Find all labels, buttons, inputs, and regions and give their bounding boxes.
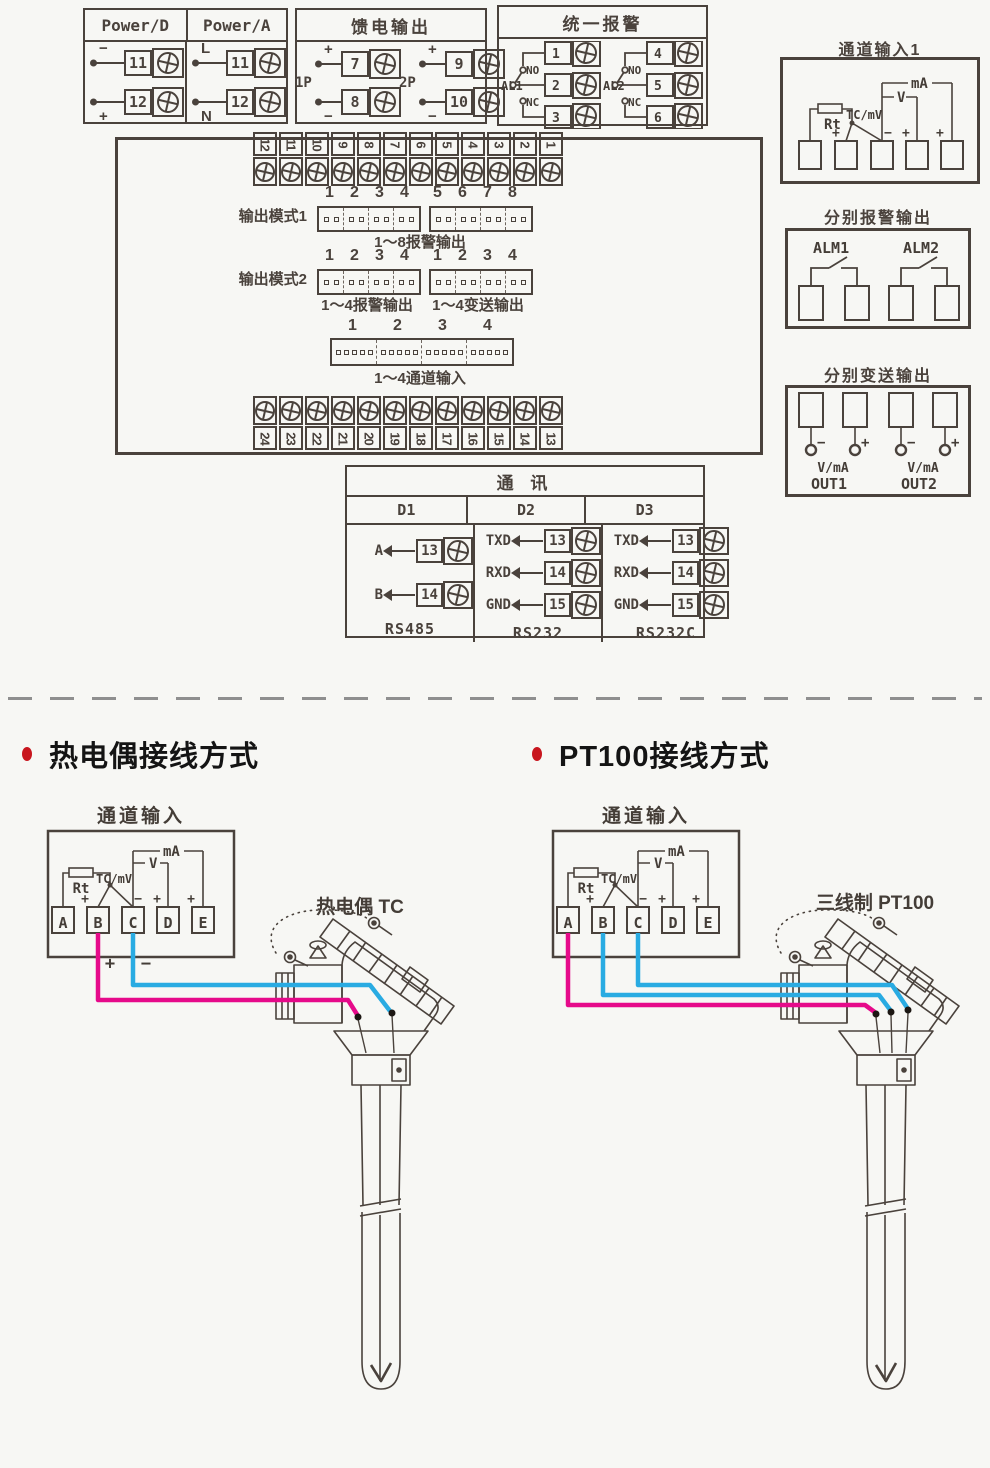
terminal-number: 15 — [492, 432, 507, 444]
comm-col-d2: D2 — [466, 497, 585, 523]
nc-label: NC — [628, 96, 641, 109]
terminal-number: 15 — [544, 593, 571, 617]
arrow-left-icon — [513, 572, 543, 574]
terminal-number: 17 — [440, 432, 455, 444]
ma-label: mA — [163, 844, 180, 860]
comm-col-d1: D1 — [347, 497, 466, 523]
screw-icon — [259, 52, 281, 74]
terminal-cell: 2 — [513, 132, 537, 186]
terminal-cell: 22 — [305, 396, 329, 450]
screw-icon — [489, 401, 509, 421]
screw-icon — [541, 401, 561, 421]
terminal-cell: 8 — [357, 132, 381, 186]
terminal-letter: B — [93, 914, 102, 932]
screw-icon — [333, 162, 353, 182]
polarity-sign: + — [99, 109, 108, 124]
arrow-left-icon — [641, 540, 671, 542]
comm-terminal-row: TXD 13 — [603, 527, 729, 555]
screw-icon — [385, 162, 405, 182]
comm-terminal-row: RXD 14 — [475, 559, 601, 587]
terminal-number: 3 — [552, 111, 560, 126]
v-label: V — [654, 856, 663, 872]
screw-icon — [411, 162, 431, 182]
terminal-number: 7 — [341, 51, 369, 77]
terminal-cell: 16 — [461, 396, 485, 450]
pin-number: 2 — [342, 184, 367, 202]
terminal-number: 14 — [518, 432, 533, 444]
pin-number: 8 — [500, 184, 525, 202]
terminal-dot — [873, 1011, 880, 1018]
v-label: V — [149, 856, 158, 872]
mode1-pin-numbers: 1234 5678 — [317, 184, 525, 202]
mode2-connectors — [317, 269, 533, 295]
terminal-row: + 12 — [90, 85, 185, 119]
channel-pin-numbers: 1234 — [330, 317, 510, 335]
terminal-dot — [888, 1009, 895, 1016]
separate-alarm-title: 分别报警输出 — [785, 204, 971, 228]
feed-output-box: 馈电输出 1P + 7 − 8 2P + 9 — [295, 8, 487, 124]
ma-label: mA — [668, 844, 685, 860]
screw-icon — [411, 401, 431, 421]
terminal-letter: A — [563, 914, 572, 932]
terminal-number: 10 — [310, 138, 325, 150]
connector-block — [317, 269, 421, 295]
v-label: V — [897, 90, 906, 106]
pin-number: 3 — [475, 247, 500, 265]
red-bullet-icon — [532, 747, 542, 761]
out2-label: OUT2 — [901, 475, 937, 493]
comm-col-d3: D3 — [584, 497, 703, 523]
screw-icon — [259, 91, 281, 113]
polarity-sign: − — [134, 892, 142, 907]
polarity-sign: + — [153, 892, 161, 907]
polarity-sign: − — [324, 109, 333, 124]
terminal-cell: 23 — [279, 396, 303, 450]
comm-terminal-row: B 14 — [347, 581, 473, 609]
terminal-cell: 18 — [409, 396, 433, 450]
pin-number: 4 — [500, 247, 525, 265]
terminal-cell: 17 — [435, 396, 459, 450]
polarity-sign: + — [658, 892, 666, 907]
terminal-cell: 13 — [539, 396, 563, 450]
terminal-cell: 15 — [487, 396, 511, 450]
screw-icon — [463, 401, 483, 421]
polarity-sign: + — [428, 42, 437, 57]
pin-number: 5 — [425, 184, 450, 202]
unified-alarm-title: 统一报警 — [499, 7, 706, 39]
channel-connector — [330, 338, 514, 366]
terminal-letter: A — [58, 914, 67, 932]
screw-icon — [489, 162, 509, 182]
terminal-number: 8 — [361, 141, 376, 147]
terminal-dot — [355, 1014, 362, 1021]
input-terminals — [799, 141, 963, 169]
terminal-dot — [389, 1010, 396, 1017]
terminal-letter: D — [668, 914, 677, 932]
screw-icon — [359, 162, 379, 182]
screw-icon — [157, 91, 179, 113]
screw-icon — [307, 401, 327, 421]
pin-number: 7 — [475, 184, 500, 202]
separate-alarm-box: ALM1 ALM2 — [785, 228, 971, 329]
screw-icon — [437, 401, 457, 421]
separate-transmit-title: 分别变送输出 — [785, 362, 971, 386]
screw-icon — [359, 401, 379, 421]
alm2-label: ALM2 — [903, 239, 939, 257]
separate-transmit-box: − + − + V/mA V/mA OUT1 OUT2 — [785, 385, 971, 497]
screw-icon — [447, 540, 469, 562]
terminal-letter: E — [703, 914, 712, 932]
screw-icon — [463, 162, 483, 182]
dashed-divider — [8, 697, 982, 700]
unified-alarm-box: 统一报警 AL1 NO NC 1 2 — [497, 5, 708, 126]
channel-input1-box: Rt TC/mV V mA + − + + — [780, 57, 980, 184]
screw-icon — [515, 162, 535, 182]
terminal-cell: 20 — [357, 396, 381, 450]
pin-number: 4 — [392, 184, 417, 202]
polarity-sign: − — [428, 109, 437, 124]
terminal-number: 14 — [544, 561, 571, 585]
polarity-sign: + — [936, 126, 944, 141]
alm2-relay — [889, 257, 959, 320]
blue-wire — [638, 933, 908, 1009]
polarity-sign: − — [884, 126, 892, 141]
power-terminals-box: Power/D Power/A − 11 + 12 L 11 — [83, 8, 288, 124]
terminal-row: + 9 — [419, 47, 505, 81]
terminal-row: − 11 — [90, 46, 185, 80]
terminal-cell: 11 — [279, 132, 303, 186]
polarity-sign: + — [586, 892, 594, 907]
connector-block — [429, 206, 533, 232]
arrow-left-icon — [385, 594, 415, 596]
polarity-sign: − — [907, 435, 915, 451]
channel-input-title: 通道输入 — [602, 804, 690, 827]
terminal-number: 2 — [552, 79, 560, 94]
screw-icon — [374, 53, 396, 75]
alarm-relay-al1: AL1 NO NC 1 2 3 — [501, 41, 602, 129]
pin-number: 3 — [367, 247, 392, 265]
terminal-number: 14 — [672, 561, 699, 585]
pin-number: 4 — [465, 317, 510, 335]
mode2-caption-left: 1～4报警输出 — [321, 294, 413, 315]
port-type-label: RS232 — [513, 624, 563, 642]
terminal-letter: E — [198, 914, 207, 932]
wire-polarity: + — [105, 954, 115, 974]
comm-terminal-row: GND 15 — [603, 591, 729, 619]
signal-label: B — [347, 587, 383, 603]
group-label: 1P — [295, 75, 312, 91]
pin-number: 3 — [367, 184, 392, 202]
comm-title: 通 讯 — [347, 467, 703, 497]
thermowell-probe — [776, 910, 959, 1389]
terminal-number: 18 — [414, 432, 429, 444]
feed-group-2p: 2P + 9 − 10 — [401, 47, 505, 119]
pin-number: 1 — [317, 184, 342, 202]
pin-number: 1 — [317, 247, 342, 265]
terminal-number: 1 — [543, 141, 558, 147]
pt100-section-heading: PT100接线方式 — [532, 733, 769, 775]
terminal-cell: 19 — [383, 396, 407, 450]
terminal-number: 8 — [341, 89, 369, 115]
terminal-number: 13 — [672, 529, 699, 553]
mode2-pin-numbers: 1234 1234 — [317, 247, 525, 265]
arrow-left-icon — [513, 540, 543, 542]
terminal-cell: 9 — [331, 132, 355, 186]
polarity-sign: + — [902, 126, 910, 141]
polarity-sign: + — [951, 435, 959, 451]
screw-icon — [333, 401, 353, 421]
screw-icon — [515, 401, 535, 421]
nc-label: NC — [526, 96, 539, 109]
heading-text: PT100接线方式 — [559, 733, 769, 775]
ma-label: mA — [911, 76, 928, 92]
power-d-column: − 11 + 12 — [85, 42, 185, 123]
terminal-number: 4 — [654, 47, 662, 62]
terminal-letter: C — [633, 914, 642, 932]
terminal-cell: 4 — [461, 132, 485, 186]
terminal-number: 21 — [336, 432, 351, 444]
vma-label: V/mA — [817, 461, 848, 476]
relay-label: AL2 — [603, 79, 625, 93]
top-terminal-strip: 12 11 10 9 8 7 6 5 — [253, 132, 563, 186]
signal-label: A — [347, 543, 383, 559]
screw-icon — [575, 594, 597, 616]
terminal-number: 15 — [672, 593, 699, 617]
alm1-label: ALM1 — [813, 239, 849, 257]
terminal-number: 10 — [445, 89, 473, 115]
polarity-sign: + — [832, 126, 840, 141]
feed-group-1p: 1P + 7 − 8 — [297, 47, 401, 119]
feed-output-title: 馈电输出 — [297, 10, 485, 42]
screw-icon — [437, 162, 457, 182]
pin-number: 6 — [450, 184, 475, 202]
terminal-number: 6 — [654, 111, 662, 126]
polarity-sign: + — [187, 892, 195, 907]
alarm-relay-al2: AL2 NO NC 4 5 6 — [603, 41, 704, 129]
screw-icon — [281, 401, 301, 421]
channel-input-title: 通道输入 — [97, 804, 185, 827]
arrow-left-icon — [641, 572, 671, 574]
terminal-number: 3 — [491, 141, 506, 147]
pt100-wiring-drawing: 通道输入 A B C D E Rt TC/mV V mA + − — [535, 795, 990, 1455]
screw-icon — [575, 562, 597, 584]
screw-icon — [255, 401, 275, 421]
screw-icon — [703, 562, 725, 584]
mode1-connectors — [317, 206, 533, 232]
terminal-number: 14 — [416, 583, 443, 607]
screw-icon — [307, 162, 327, 182]
terminal-number: 19 — [388, 432, 403, 444]
terminal-number: 7 — [387, 141, 402, 147]
thermocouple-section-heading: 热电偶接线方式 — [22, 733, 259, 775]
polarity-sign: L — [201, 41, 210, 56]
screw-icon — [374, 91, 396, 113]
terminal-number: 5 — [439, 141, 454, 147]
thermocouple-wiring-drawing: 通道输入 A B C D E Rt TC/mV V mA + − — [30, 795, 485, 1455]
signal-label: RXD — [603, 565, 639, 581]
screw-icon — [447, 584, 469, 606]
signal-label: TXD — [603, 533, 639, 549]
polarity-sign: − — [817, 435, 825, 451]
no-label: NO — [628, 64, 642, 77]
comm-d2-column: TXD 13 RXD 14 GND 15 — [473, 525, 601, 642]
polarity-sign: + — [692, 892, 700, 907]
terminal-cell: 12 — [253, 132, 277, 186]
comm-terminal-row: GND 15 — [475, 591, 601, 619]
terminal-number: 11 — [124, 50, 152, 76]
terminal-number: 6 — [413, 141, 428, 147]
wire-polarity: − — [141, 954, 151, 974]
out2-terminals — [889, 393, 957, 455]
power-d-title: Power/D — [85, 10, 186, 42]
screw-icon — [575, 530, 597, 552]
terminal-cell: 7 — [383, 132, 407, 186]
no-label: NO — [526, 64, 540, 77]
screw-icon — [541, 162, 561, 182]
terminal-number: 20 — [362, 432, 377, 444]
arrow-left-icon — [641, 604, 671, 606]
polarity-sign: − — [99, 41, 108, 56]
terminal-cell: 21 — [331, 396, 355, 450]
connector-block — [317, 206, 421, 232]
sensor-label: 三线制 PT100 — [816, 891, 934, 914]
output-mode2-label: 输出模式2 — [195, 268, 307, 289]
terminal-number: 12 — [258, 138, 273, 150]
connector-block — [330, 338, 514, 366]
pin-number: 2 — [375, 317, 420, 335]
terminal-number: 12 — [124, 89, 152, 115]
signal-label: GND — [603, 597, 639, 613]
comm-terminal-row: TXD 13 — [475, 527, 601, 555]
screw-icon — [255, 162, 275, 182]
terminal-number: 1 — [552, 47, 560, 62]
terminal-number: 22 — [310, 432, 325, 444]
mode2-caption-right: 1～4变送输出 — [432, 294, 524, 315]
out1-terminals — [799, 393, 867, 455]
pin-number: 4 — [392, 247, 417, 265]
comm-d3-column: TXD 13 RXD 14 GND 15 — [601, 525, 729, 642]
terminal-number: 13 — [544, 529, 571, 553]
pin-number: 1 — [425, 247, 450, 265]
terminal-cell: 14 — [513, 396, 537, 450]
arrow-left-icon — [385, 550, 415, 552]
tc-mv-label: TC/mV — [601, 872, 637, 886]
power-a-title: Power/A — [186, 10, 287, 42]
terminal-number: 2 — [517, 141, 532, 147]
screw-icon — [281, 162, 301, 182]
terminal-number: 13 — [544, 432, 559, 444]
terminal-row: − 8 — [315, 85, 401, 119]
terminal-number: 4 — [465, 141, 480, 147]
terminal-letter: D — [163, 914, 172, 932]
thermowell-probe — [271, 910, 454, 1389]
terminal-number: 9 — [445, 51, 473, 77]
terminal-cell: 10 — [305, 132, 329, 186]
port-type-label: RS485 — [385, 620, 435, 638]
terminal-number: 11 — [284, 138, 299, 150]
connector-block — [429, 269, 533, 295]
pin-number: 1 — [330, 317, 375, 335]
tc-mv-label: TC/mV — [96, 872, 132, 886]
relay-label: AL1 — [501, 79, 523, 93]
communication-box: 通 讯 D1 D2 D3 A 13 B 14 — [345, 465, 705, 638]
output-mode1-label: 输出模式1 — [195, 205, 307, 226]
terminal-number: 11 — [226, 50, 254, 76]
terminal-cell: 1 — [539, 132, 563, 186]
vma-label: V/mA — [907, 461, 938, 476]
screw-icon — [703, 530, 725, 552]
terminal-letter: C — [128, 914, 137, 932]
port-type-label: RS232C — [636, 624, 696, 642]
polarity-sign: + — [861, 435, 869, 451]
terminal-cell: 5 — [435, 132, 459, 186]
pin-number: 2 — [342, 247, 367, 265]
red-bullet-icon — [22, 747, 32, 761]
terminal-cell: 6 — [409, 132, 433, 186]
power-a-column: L 11 N 12 — [185, 42, 286, 123]
signal-label: TXD — [475, 533, 511, 549]
pin-number: 2 — [450, 247, 475, 265]
out1-label: OUT1 — [811, 475, 847, 493]
terminal-cell: 3 — [487, 132, 511, 186]
screw-icon — [385, 401, 405, 421]
polarity-sign: − — [639, 892, 647, 907]
terminal-letter: B — [598, 914, 607, 932]
pink-wire — [568, 933, 876, 1013]
group-label: 2P — [399, 75, 416, 91]
signal-label: GND — [475, 597, 511, 613]
terminal-number: 13 — [416, 539, 443, 563]
screw-icon — [703, 594, 725, 616]
heading-text: 热电偶接线方式 — [49, 733, 259, 775]
alm1-relay — [799, 257, 869, 320]
pink-wire — [98, 933, 358, 1016]
terminal-number: 12 — [226, 89, 254, 115]
comm-terminal-row: A 13 — [347, 537, 473, 565]
polarity-sign: + — [324, 42, 333, 57]
terminal-number: 16 — [466, 432, 481, 444]
signal-label: RXD — [475, 565, 511, 581]
comm-d1-column: A 13 B 14 RS485 — [347, 525, 473, 642]
terminal-number: 9 — [335, 141, 350, 147]
terminal-row: N 12 — [192, 85, 286, 119]
wiring-diagram-page: Power/D Power/A − 11 + 12 L 11 — [0, 0, 990, 1468]
pin-number: 3 — [420, 317, 465, 335]
terminal-number: 23 — [284, 432, 299, 444]
terminal-row: L 11 — [192, 46, 286, 80]
terminal-number: 24 — [258, 432, 273, 444]
comm-terminal-row: RXD 14 — [603, 559, 729, 587]
arrow-left-icon — [513, 604, 543, 606]
bottom-terminal-strip: 24 23 22 21 20 19 18 17 — [253, 396, 563, 450]
terminal-dot — [905, 1007, 912, 1014]
terminal-cell: 24 — [253, 396, 277, 450]
terminal-row: + 7 — [315, 47, 401, 81]
terminal-number: 5 — [654, 79, 662, 94]
sensor-wires — [98, 933, 390, 1016]
terminal-row: − 10 — [419, 85, 505, 119]
tc-mv-label: TC/mV — [846, 108, 882, 122]
polarity-sign: + — [81, 892, 89, 907]
channel-caption: 1～4通道输入 — [374, 367, 466, 388]
polarity-sign: N — [201, 109, 212, 124]
screw-icon — [157, 52, 179, 74]
